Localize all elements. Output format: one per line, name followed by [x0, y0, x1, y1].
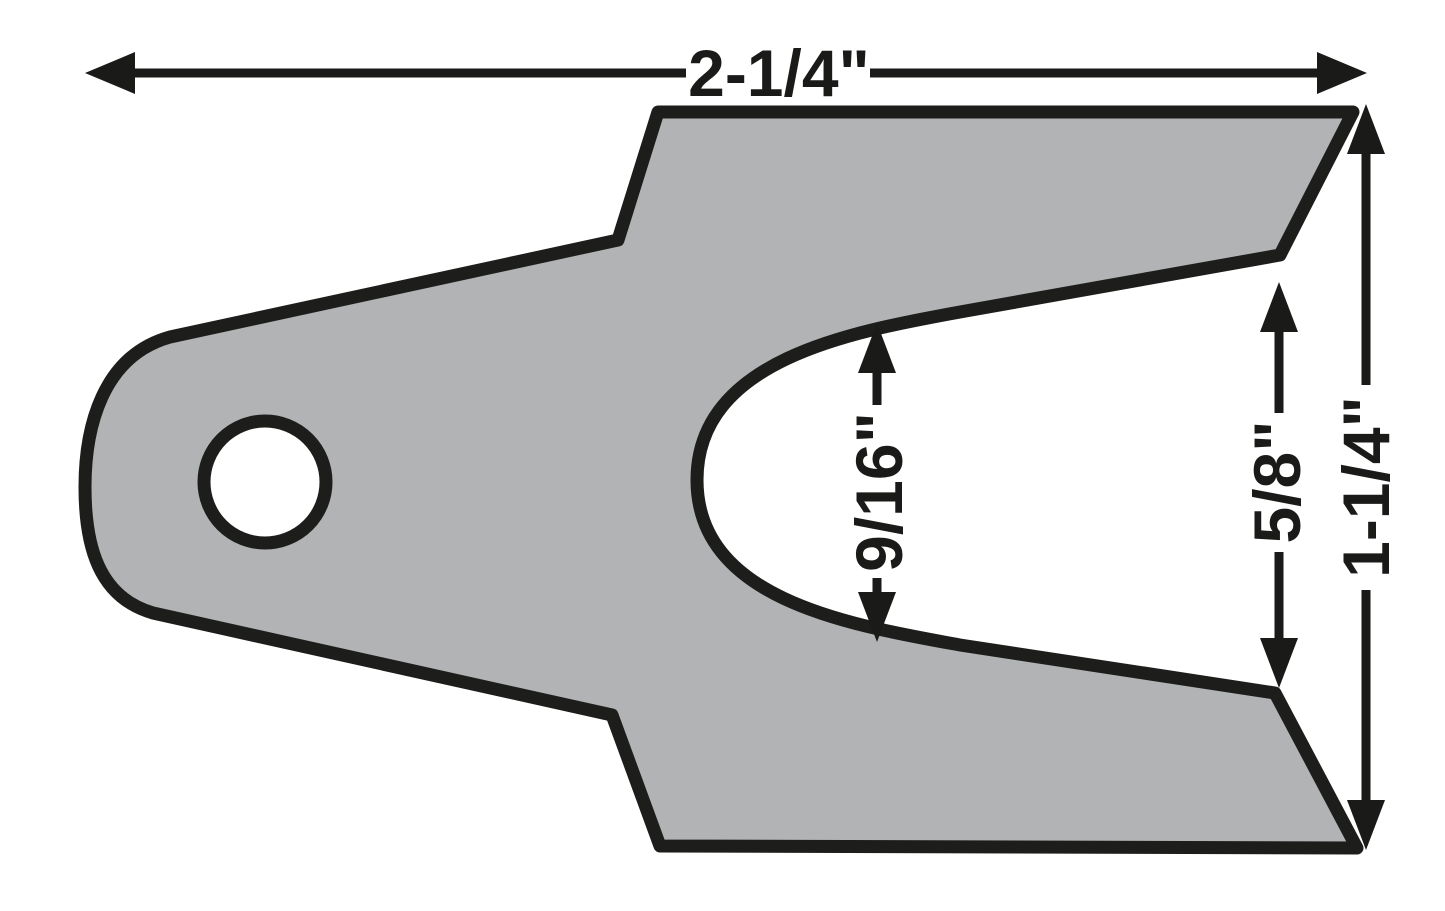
- overall-height-label: 1-1/4": [1329, 396, 1403, 578]
- slot-mid-label: 9/16": [842, 412, 916, 572]
- shim-technical-drawing: 2-1/4" 1-1/4" 5/8" 9/16": [0, 0, 1445, 911]
- slot-opening-dimension: 5/8": [1240, 282, 1314, 688]
- arrowhead-right-icon: [1317, 52, 1367, 94]
- width-dim-line-left: [130, 69, 686, 78]
- slot-open-dim-line-upper: [1275, 330, 1284, 413]
- slot-mid-dim-line-lower: [873, 578, 882, 594]
- slot-open-dim-line-lower: [1275, 552, 1284, 640]
- height-dim-line-lower: [1362, 590, 1371, 802]
- slot-mid-dim-line-upper: [873, 371, 882, 405]
- arrowhead-up-icon: [1260, 282, 1298, 332]
- height-dim-line-upper: [1362, 150, 1371, 385]
- overall-width-dimension: 2-1/4": [85, 36, 1367, 110]
- arrowhead-down-icon: [1260, 638, 1298, 688]
- mounting-hole: [204, 421, 326, 543]
- width-dim-line-right: [870, 69, 1322, 78]
- drawing-canvas: 2-1/4" 1-1/4" 5/8" 9/16": [0, 0, 1445, 911]
- overall-width-label: 2-1/4": [688, 36, 870, 110]
- arrowhead-left-icon: [85, 52, 135, 94]
- slot-opening-label: 5/8": [1240, 420, 1314, 543]
- overall-height-dimension: 1-1/4": [1329, 104, 1403, 850]
- slot-mid-dimension: 9/16": [842, 323, 916, 642]
